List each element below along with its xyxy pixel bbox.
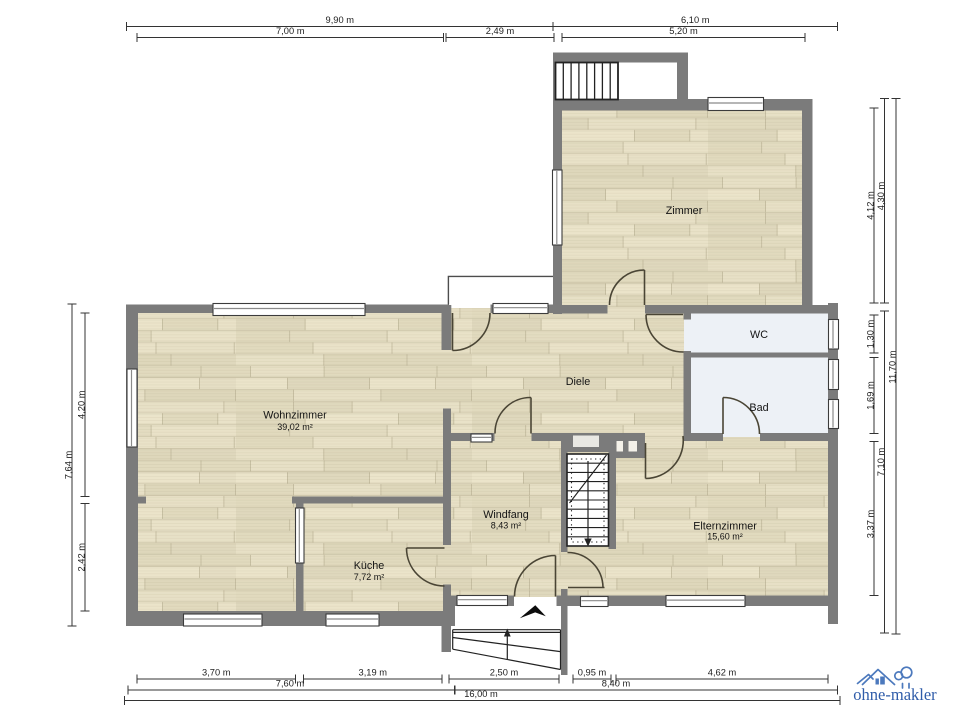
svg-text:39,02 m²: 39,02 m² bbox=[277, 422, 313, 432]
svg-text:4,12 m: 4,12 m bbox=[866, 191, 876, 220]
svg-text:2,50 m: 2,50 m bbox=[490, 668, 519, 678]
svg-text:1,69 m: 1,69 m bbox=[866, 381, 876, 410]
svg-text:7,72 m²: 7,72 m² bbox=[354, 572, 385, 582]
svg-text:Zimmer: Zimmer bbox=[666, 205, 703, 217]
svg-text:Bad: Bad bbox=[749, 402, 768, 414]
svg-text:7,00 m: 7,00 m bbox=[276, 26, 305, 36]
svg-text:9,90 m: 9,90 m bbox=[326, 15, 355, 25]
svg-text:Küche: Küche bbox=[354, 560, 385, 572]
svg-text:8,43 m²: 8,43 m² bbox=[491, 521, 522, 531]
svg-text:4,62 m: 4,62 m bbox=[708, 668, 737, 678]
svg-text:ohne-makler: ohne-makler bbox=[853, 685, 937, 704]
svg-text:Diele: Diele bbox=[566, 376, 591, 388]
svg-text:4,30 m: 4,30 m bbox=[876, 182, 886, 211]
svg-text:Wohnzimmer: Wohnzimmer bbox=[263, 410, 327, 422]
svg-text:16,00 m: 16,00 m bbox=[464, 689, 498, 699]
svg-text:6,10 m: 6,10 m bbox=[681, 15, 710, 25]
svg-text:2,42 m: 2,42 m bbox=[77, 543, 87, 572]
svg-text:4,20 m: 4,20 m bbox=[77, 390, 87, 419]
svg-text:Windfang: Windfang bbox=[483, 509, 529, 521]
svg-text:2,49 m: 2,49 m bbox=[486, 26, 515, 36]
svg-text:5,20 m: 5,20 m bbox=[669, 26, 698, 36]
svg-text:0,95 m: 0,95 m bbox=[578, 668, 607, 678]
svg-text:8,40 m: 8,40 m bbox=[602, 679, 631, 689]
svg-text:15,60 m²: 15,60 m² bbox=[707, 532, 743, 542]
svg-text:1,30 m: 1,30 m bbox=[866, 320, 876, 349]
svg-text:7,10 m: 7,10 m bbox=[876, 448, 886, 477]
svg-text:11,70 m: 11,70 m bbox=[888, 350, 898, 383]
svg-text:7,60 m: 7,60 m bbox=[276, 679, 305, 689]
svg-text:3,19 m: 3,19 m bbox=[359, 668, 388, 678]
svg-text:7,64 m: 7,64 m bbox=[64, 451, 74, 480]
svg-text:3,37 m: 3,37 m bbox=[866, 510, 876, 539]
svg-text:WC: WC bbox=[750, 329, 768, 341]
svg-text:3,70 m: 3,70 m bbox=[202, 668, 231, 678]
